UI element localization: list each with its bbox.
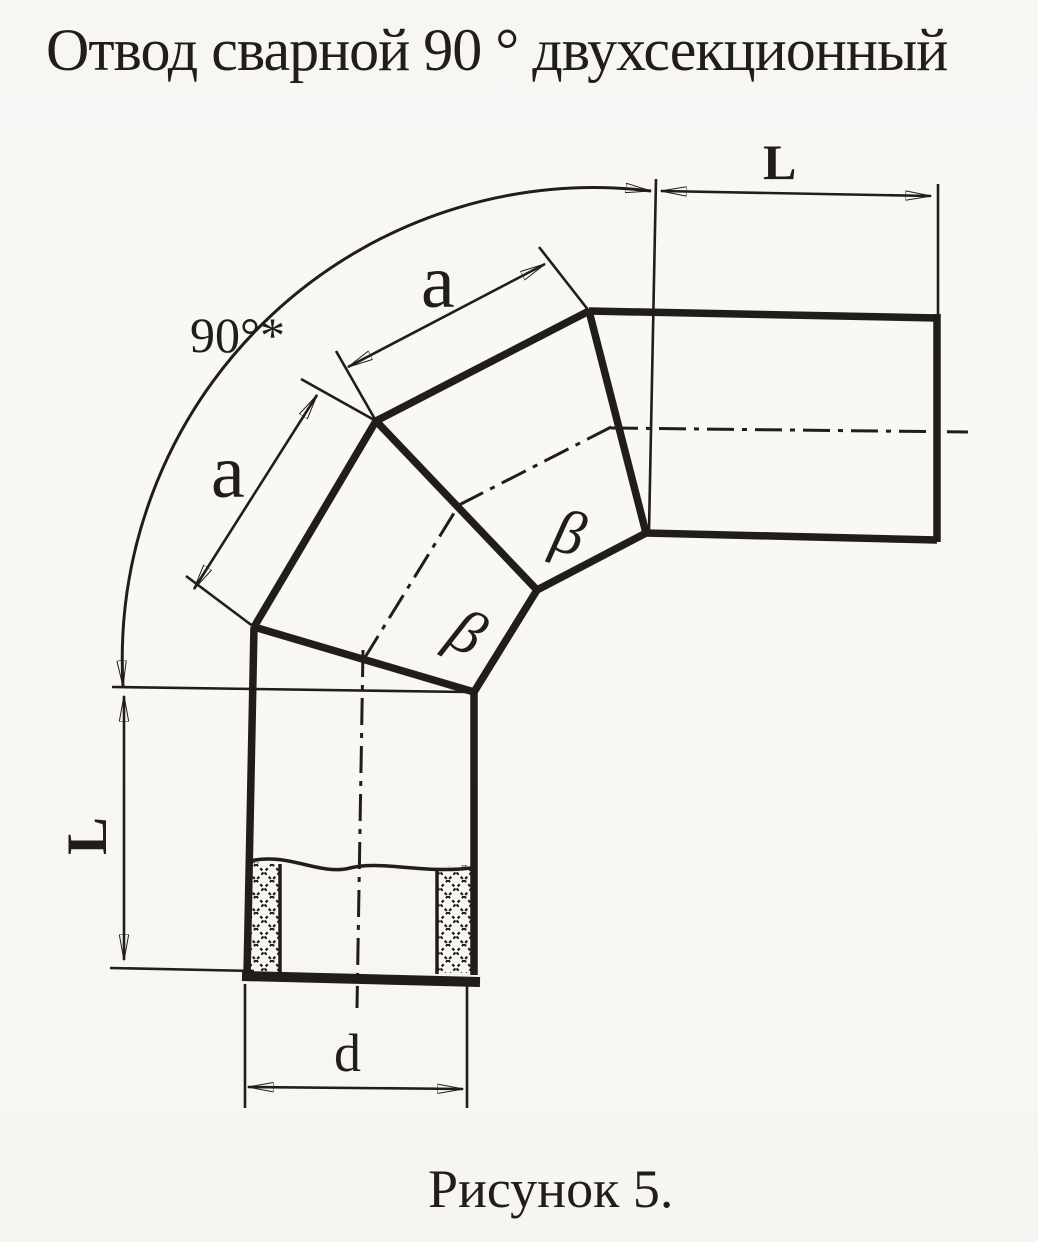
extension-line-L-left-bottom	[110, 968, 254, 971]
dimension-L-top	[649, 179, 938, 531]
angle-label: 90°*	[190, 307, 285, 363]
extension-line-L-top-left	[649, 179, 656, 531]
pipe-wall-section	[248, 859, 474, 974]
extension-line-L-left-top	[112, 687, 468, 692]
pipe-wall-hatch-right	[437, 865, 474, 973]
label-a-lower: a	[211, 430, 245, 514]
label-a-upper: a	[421, 240, 455, 324]
elbow-drawing: 90°* a a L L d β β	[0, 0, 1038, 1242]
dimension-L-left	[110, 687, 468, 971]
weld-seam-a	[254, 627, 474, 692]
center-line-section2	[459, 424, 617, 505]
figure-caption: Рисунок 5.	[428, 1158, 673, 1220]
right-pipe-top-edge	[589, 311, 937, 318]
label-beta-upper: β	[545, 496, 593, 570]
extension-line-a-upper-right	[539, 247, 589, 311]
dimension-line-d	[248, 1087, 463, 1089]
label-L-top: L	[763, 134, 796, 190]
label-beta-lower: β	[437, 595, 497, 670]
right-pipe-bottom-edge	[646, 533, 937, 540]
label-L-left: L	[56, 817, 119, 855]
center-line-section1	[364, 505, 459, 659]
center-line-right-pipe	[611, 428, 968, 432]
scanned-figure-page: Отвод сварной 90 ° двухсекционный	[0, 0, 1038, 1242]
bottom-pipe-end-edge	[242, 976, 480, 982]
dimension-line-L-top	[661, 191, 931, 196]
label-d: d	[334, 1023, 361, 1083]
weld-seam-b	[376, 421, 537, 590]
section2-outer-edge	[376, 311, 589, 421]
elbow-outline	[242, 311, 937, 982]
center-line-bottom-pipe	[357, 650, 363, 1008]
weld-seam-c	[589, 311, 646, 533]
section1-outer-edge	[254, 421, 376, 627]
pipe-wall-hatch-left	[248, 862, 280, 973]
